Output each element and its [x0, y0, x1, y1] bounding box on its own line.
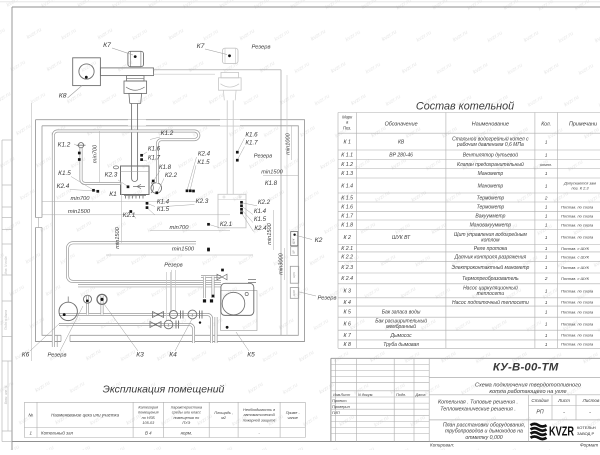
svg-text:1: 1: [545, 342, 548, 347]
svg-text:помещения: помещения: [138, 411, 159, 415]
svg-text:1: 1: [545, 300, 548, 305]
svg-text:Клапан предохранительный: Клапан предохранительный: [457, 161, 524, 168]
svg-text:min3000: min3000: [279, 252, 285, 274]
svg-text:К1.7: К1.7: [245, 140, 258, 147]
svg-text:Бак запаса воды: Бак запаса воды: [382, 309, 421, 315]
svg-text:1: 1: [545, 235, 548, 240]
svg-text:1: 1: [167, 323, 169, 328]
svg-text:Постав. с ШУК: Постав. с ШУК: [561, 265, 590, 270]
svg-text:Постав. по согла: Постав. по согла: [561, 235, 594, 240]
svg-text:Постав. с ШУК: Постав. с ШУК: [561, 254, 590, 259]
svg-text:трубопроводов и дымоходов на: трубопроводов и дымоходов на: [445, 429, 523, 435]
svg-text:Резерв: Резерв: [47, 353, 66, 359]
svg-text:Постав. по согла: Постав. по согла: [561, 342, 594, 347]
svg-text:№: №: [28, 413, 33, 418]
svg-text:Реле протока: Реле протока: [474, 246, 507, 252]
svg-text:Площадь ,: Площадь ,: [214, 411, 233, 415]
svg-text:ЩАВ: ЩАВ: [292, 290, 296, 296]
svg-text:К1.8: К1.8: [265, 180, 278, 187]
svg-text:Формат: Формат: [580, 443, 598, 448]
svg-text:Копировал:: Копировал:: [430, 443, 455, 448]
svg-text:К6: К6: [22, 352, 30, 359]
svg-text:К1.5: К1.5: [197, 159, 210, 166]
svg-text:105-03: 105-03: [142, 421, 155, 425]
svg-text:Проверил: Проверил: [332, 404, 351, 409]
svg-text:К 2.3: К 2.3: [341, 265, 353, 271]
svg-text:Постав. по согла: Постав. по согла: [561, 321, 594, 326]
svg-text:по НПБ: по НПБ: [142, 416, 156, 420]
svg-text:Постав. по согла: Постав. по согла: [561, 288, 594, 293]
svg-text:К1.4: К1.4: [254, 208, 267, 215]
svg-text:К7: К7: [103, 42, 111, 49]
svg-text:2: 2: [544, 276, 548, 281]
svg-text:ШУК ВТ: ШУК ВТ: [392, 235, 411, 241]
svg-text:Труба дымовая: Труба дымовая: [383, 342, 419, 348]
svg-text:ЩУК: ЩУК: [292, 238, 296, 244]
svg-text:К5: К5: [247, 352, 255, 359]
svg-text:1: 1: [545, 214, 548, 219]
svg-text:min1500: min1500: [267, 222, 273, 244]
svg-text:min700: min700: [93, 144, 99, 163]
svg-text:Котельная . Типовые решения .: Котельная . Типовые решения .: [438, 400, 518, 406]
svg-text:N докум.: N докум.: [358, 393, 373, 397]
svg-text:Взам. инв. N: Взам. инв. N: [4, 385, 8, 404]
svg-text:Листов: Листов: [582, 398, 600, 403]
svg-text:Постав. с ШУК: Постав. с ШУК: [561, 246, 590, 251]
svg-text:К1.6: К1.6: [245, 132, 258, 139]
svg-text:В 4: В 4: [145, 431, 152, 436]
svg-text:мембранный: мембранный: [386, 323, 416, 330]
svg-text:К 8: К 8: [343, 342, 350, 348]
svg-text:К1.4: К1.4: [157, 199, 170, 206]
svg-text:чание: чание: [288, 416, 298, 420]
svg-text:Резерв: Резерв: [317, 296, 336, 302]
svg-text:К4: К4: [169, 352, 177, 359]
svg-text:1: 1: [545, 223, 548, 228]
svg-text:Резерв: Резерв: [254, 154, 272, 160]
svg-text:К 2: К 2: [343, 235, 350, 241]
svg-text:Постав. по согла: Постав. по согла: [561, 333, 594, 338]
svg-text:К7: К7: [197, 43, 205, 50]
svg-text:котла работающего на угле: котла работающего на угле: [489, 389, 566, 395]
svg-text:котлом: котлом: [481, 237, 500, 243]
svg-text:К2.3: К2.3: [196, 198, 209, 205]
svg-text:Состав котельной: Состав котельной: [416, 101, 514, 113]
svg-text:Примечани: Примечани: [569, 122, 597, 128]
svg-text:Подп.: Подп.: [396, 393, 406, 397]
svg-text:Поз.: Поз.: [343, 126, 351, 131]
svg-text:Схема подключения твердотоплив: Схема подключения твердотопливного: [475, 382, 581, 388]
svg-text:среды или класс: среды или класс: [172, 411, 201, 415]
svg-text:компл.: компл.: [540, 163, 552, 167]
svg-text:К2.2: К2.2: [165, 172, 178, 179]
svg-text:Котельный зал: Котельный зал: [41, 431, 73, 436]
svg-text:К 7: К 7: [343, 333, 351, 339]
svg-text:Постав. с ШУК: Постав. с ШУК: [561, 276, 590, 281]
svg-text:К 3: К 3: [343, 289, 350, 295]
svg-text:1: 1: [545, 153, 548, 158]
svg-text:-: -: [563, 410, 565, 416]
svg-text:К2.2: К2.2: [258, 199, 271, 206]
svg-text:К3: К3: [136, 352, 144, 359]
svg-text:норм.: норм.: [181, 431, 192, 436]
svg-text:К 1.3: К 1.3: [341, 171, 353, 177]
svg-text:Электроконтактный манометр: Электроконтактный манометр: [451, 264, 529, 271]
svg-text:пожарной защите: пожарной защите: [243, 418, 276, 422]
svg-text:1: 1: [545, 205, 548, 210]
svg-text:теплосети: теплосети: [477, 291, 505, 297]
svg-text:Резерв: Резерв: [251, 45, 270, 51]
svg-text:ВР 280-46: ВР 280-46: [389, 153, 413, 159]
svg-text:Тепломеханические решения .: Тепломеханические решения .: [440, 407, 516, 413]
svg-text:К1.6: К1.6: [148, 146, 161, 153]
svg-text:KVZR: KVZR: [549, 424, 574, 439]
svg-text:1: 1: [191, 313, 193, 318]
svg-text:К 1.5: К 1.5: [341, 195, 353, 201]
svg-text:КОТЕЛЬН: КОТЕЛЬН: [577, 425, 596, 430]
svg-text:К1.5: К1.5: [254, 216, 267, 223]
svg-text:Вентилятор дутьевой: Вентилятор дутьевой: [463, 152, 518, 159]
svg-text:Постав. по согла: Постав. по согла: [561, 222, 594, 227]
svg-text:Обозначение: Обозначение: [385, 122, 418, 128]
svg-text:ЩУК: ЩУК: [292, 272, 296, 278]
svg-text:Наименование: Наименование: [472, 122, 509, 128]
svg-text:Постав. по согла: Постав. по согла: [561, 309, 594, 314]
svg-text:К 1.8: К 1.8: [341, 223, 353, 229]
svg-text:-: -: [589, 410, 591, 416]
svg-text:1: 1: [545, 139, 548, 144]
svg-text:К 6: К 6: [343, 322, 350, 328]
svg-text:автоматической: автоматической: [243, 413, 275, 417]
svg-text:К 1.4: К 1.4: [341, 183, 353, 189]
svg-text:min700: min700: [70, 196, 90, 202]
svg-text:Вакуумметр: Вакуумметр: [475, 214, 505, 220]
svg-text:К 1.6: К 1.6: [341, 205, 353, 211]
svg-text:К2.3: К2.3: [105, 172, 118, 179]
svg-text:Экспликация помещений: Экспликация помещений: [103, 385, 225, 396]
svg-text:min1500: min1500: [172, 247, 195, 253]
svg-text:Манометр: Манометр: [478, 171, 504, 177]
svg-text:ПУЭ: ПУЭ: [182, 421, 190, 425]
svg-text:min1500: min1500: [68, 209, 91, 215]
svg-text:1: 1: [545, 183, 548, 188]
svg-text:К8: К8: [59, 93, 67, 100]
svg-text:Манометр: Манометр: [478, 183, 504, 189]
svg-text:Постав. по согла: Постав. по согла: [561, 204, 594, 209]
svg-text:К 1: К 1: [343, 139, 350, 145]
svg-text:min1500: min1500: [261, 170, 283, 176]
svg-text:Наименование цеха или участка: Наименование цеха или участка: [51, 413, 120, 418]
svg-text:1: 1: [545, 289, 548, 294]
svg-text:К1.2: К1.2: [161, 130, 174, 137]
svg-text:К 2.4: К 2.4: [341, 276, 353, 282]
svg-text:К 2.2: К 2.2: [341, 255, 353, 261]
svg-text:1: 1: [545, 171, 548, 176]
svg-text:КВ: КВ: [398, 139, 405, 145]
svg-text:Мановакуумметр: Мановакуумметр: [470, 223, 512, 229]
svg-text:К 1.7: К 1.7: [341, 214, 354, 220]
svg-text:рабочим давлением 0,6 МПа: рабочим давлением 0,6 МПа: [456, 142, 524, 148]
svg-text:К 4: К 4: [343, 300, 350, 306]
svg-text:1: 1: [545, 309, 548, 314]
svg-text:Термопреобразователь: Термопреобразователь: [462, 276, 519, 282]
svg-text:Лист: Лист: [340, 393, 351, 397]
svg-text:min1000: min1000: [286, 132, 292, 154]
svg-text:2: 2: [544, 195, 548, 200]
svg-text:Резерв: Резерв: [164, 263, 182, 269]
svg-text:Категория: Категория: [138, 406, 158, 410]
svg-text:К 1.1: К 1.1: [341, 153, 353, 159]
svg-text:1: 1: [545, 322, 548, 327]
svg-text:Инв. N подл.: Инв. N подл.: [4, 256, 8, 275]
svg-text:План расстановки оборудования,: План расстановки оборудования,: [443, 422, 525, 428]
svg-text:поз. К 2.3: поз. К 2.3: [571, 186, 589, 191]
svg-text:Термометр: Термометр: [477, 205, 505, 211]
svg-text:Проект.: Проект.: [332, 398, 347, 403]
svg-text:К1.8: К1.8: [159, 164, 172, 171]
svg-text:К 5: К 5: [343, 309, 350, 315]
svg-text:ЗАВОД Р: ЗАВОД Р: [577, 431, 594, 436]
svg-text:ГИП: ГИП: [332, 410, 340, 415]
svg-text:Дата: Дата: [415, 393, 426, 397]
svg-text:Термометр: Термометр: [477, 195, 505, 201]
svg-text:min1500: min1500: [115, 226, 121, 248]
svg-text:Подп. и дата: Подп. и дата: [4, 310, 8, 330]
svg-text:Дымосос: Дымосос: [389, 333, 412, 339]
svg-text:Необходимость в: Необходимость в: [243, 408, 275, 412]
svg-text:1: 1: [545, 333, 548, 338]
svg-text:К2.4: К2.4: [254, 225, 267, 232]
svg-text:К2.4: К2.4: [198, 151, 211, 158]
svg-text:Постав. по согла: Постав. по согла: [561, 213, 594, 218]
svg-text:Приме -: Приме -: [286, 411, 301, 415]
svg-text:К1.7: К1.7: [148, 155, 161, 162]
svg-text:1: 1: [545, 246, 548, 251]
svg-text:min700: min700: [169, 225, 189, 231]
svg-text:К 1.2: К 1.2: [341, 162, 353, 168]
svg-text:К1.5: К1.5: [58, 170, 71, 177]
svg-text:К1: К1: [109, 191, 117, 198]
svg-text:К2.4: К2.4: [57, 183, 70, 190]
svg-text:Кол.: Кол.: [541, 122, 551, 128]
svg-text:Постав. по согла: Постав. по согла: [561, 300, 594, 305]
svg-text:К2: К2: [315, 237, 323, 244]
svg-text:К 2.1: К 2.1: [341, 246, 353, 252]
svg-text:помещения по: помещения по: [173, 416, 199, 420]
svg-text:К2.1: К2.1: [220, 221, 232, 228]
svg-text:К1.2: К1.2: [58, 142, 71, 149]
svg-text:1: 1: [545, 265, 548, 270]
svg-text:Лист: Лист: [557, 398, 570, 403]
svg-text:РП: РП: [536, 410, 543, 416]
svg-text:КУ-В-00-ТМ: КУ-В-00-ТМ: [493, 361, 559, 373]
svg-text:Стадия: Стадия: [531, 398, 549, 403]
svg-text:отметку 0,000: отметку 0,000: [465, 435, 502, 441]
svg-text:Насос подпиточный теплосети: Насос подпиточный теплосети: [452, 299, 529, 306]
svg-text:ЩР: ЩР: [293, 250, 296, 254]
svg-text:1: 1: [545, 255, 548, 260]
svg-text:Характеристика: Характеристика: [170, 406, 202, 410]
svg-text:Датчик контроля разряжения: Датчик контроля разряжения: [454, 255, 527, 261]
